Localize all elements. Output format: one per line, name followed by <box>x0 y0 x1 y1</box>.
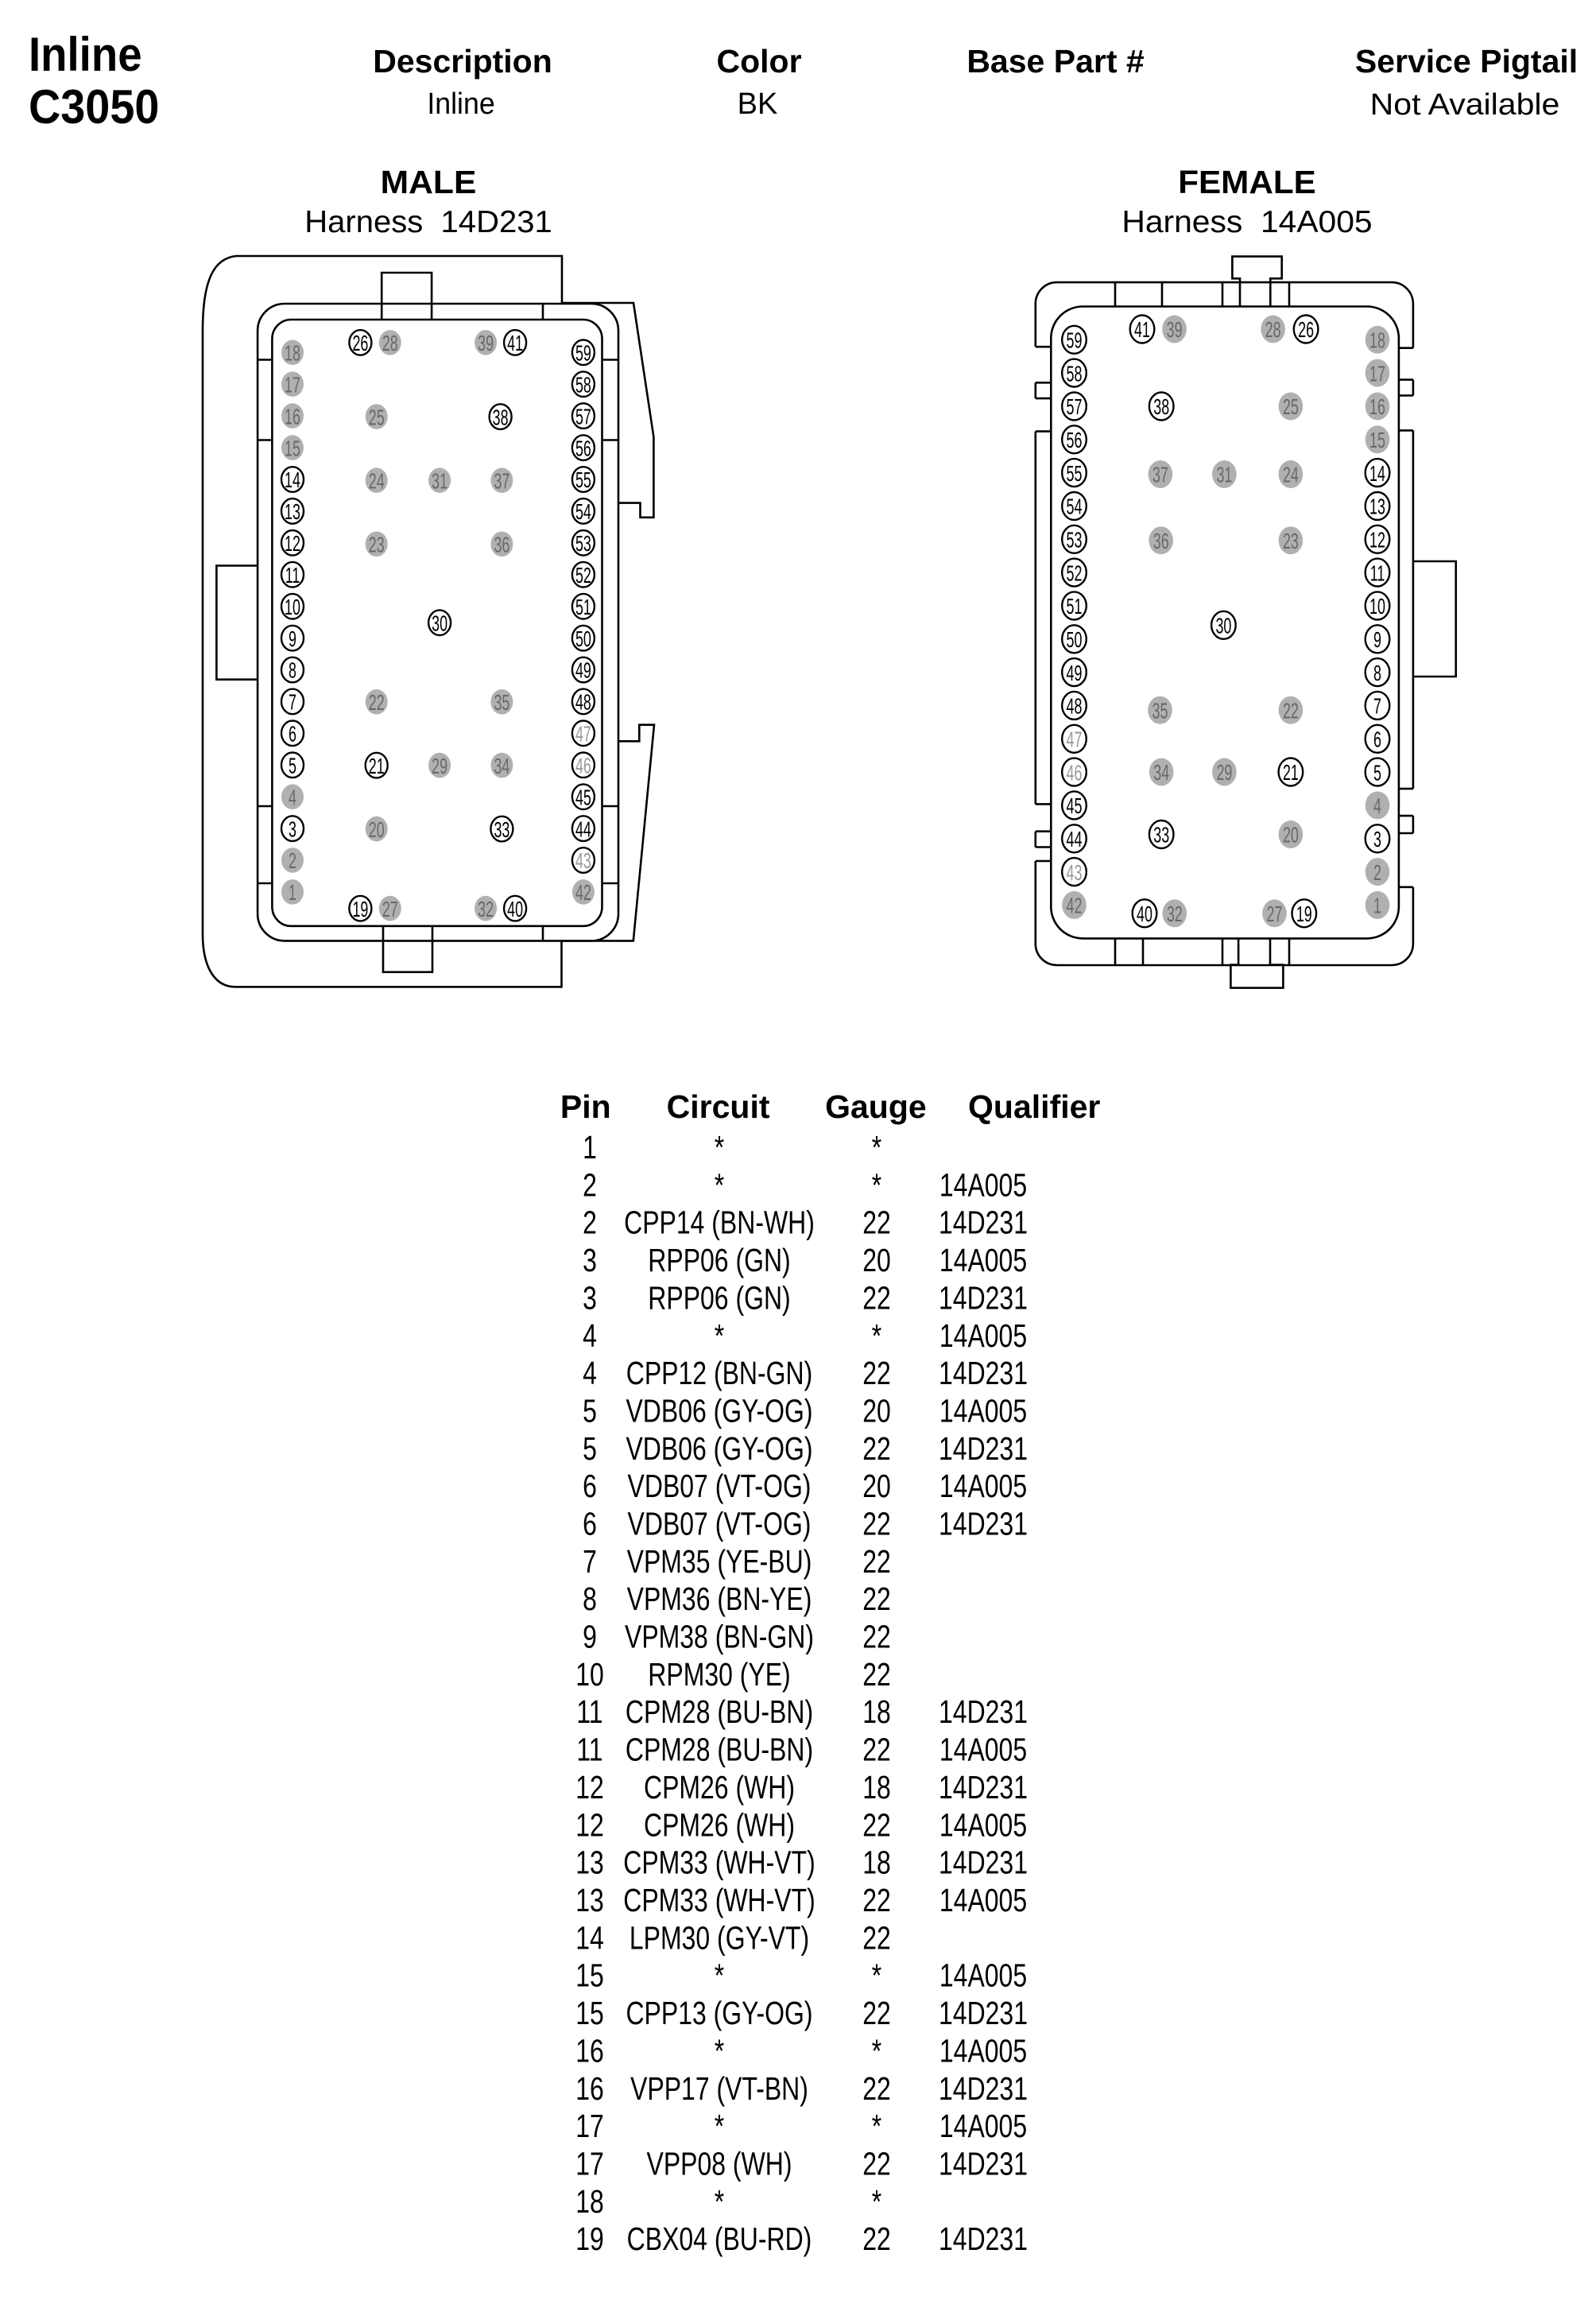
svg-text:14D231: 14D231 <box>939 2070 1028 2107</box>
svg-text:VPM35 (YE-BU): VPM35 (YE-BU) <box>627 1543 812 1580</box>
svg-text:31: 31 <box>1216 463 1232 487</box>
svg-text:CPP14 (BN-WH): CPP14 (BN-WH) <box>624 1204 815 1241</box>
svg-text:16: 16 <box>1369 394 1385 419</box>
svg-text:4: 4 <box>583 1317 597 1354</box>
svg-text:*: * <box>715 2108 724 2144</box>
svg-text:7: 7 <box>1373 694 1381 719</box>
svg-text:37: 37 <box>494 468 509 493</box>
svg-text:14A005: 14A005 <box>939 1393 1027 1429</box>
svg-text:14A005: 14A005 <box>939 2108 1027 2144</box>
svg-text:55: 55 <box>575 467 591 492</box>
svg-text:22: 22 <box>862 1280 891 1317</box>
svg-text:45: 45 <box>1067 793 1083 818</box>
svg-text:13: 13 <box>1369 495 1385 519</box>
svg-text:C3050: C3050 <box>29 81 159 134</box>
svg-text:32: 32 <box>478 897 494 921</box>
svg-text:2: 2 <box>1373 860 1381 885</box>
svg-text:53: 53 <box>575 531 591 556</box>
svg-text:20: 20 <box>862 1468 891 1504</box>
svg-text:50: 50 <box>1067 627 1083 652</box>
svg-text:8: 8 <box>583 1581 597 1617</box>
svg-text:41: 41 <box>507 331 523 355</box>
svg-text:16: 16 <box>575 2033 604 2069</box>
svg-text:19: 19 <box>1296 902 1312 926</box>
svg-text:34: 34 <box>494 754 509 778</box>
svg-text:MALE: MALE <box>381 164 477 200</box>
svg-text:CPM26 (WH): CPM26 (WH) <box>644 1769 795 1806</box>
svg-text:17: 17 <box>575 2108 604 2144</box>
svg-text:8: 8 <box>289 658 296 683</box>
svg-text:18: 18 <box>862 1844 891 1881</box>
svg-text:52: 52 <box>1067 560 1083 585</box>
svg-text:51: 51 <box>575 595 591 619</box>
svg-text:9: 9 <box>289 626 296 651</box>
svg-text:57: 57 <box>1067 394 1083 419</box>
svg-text:5: 5 <box>583 1393 597 1429</box>
svg-text:14A005: 14A005 <box>939 2033 1027 2069</box>
svg-text:33: 33 <box>1153 823 1169 848</box>
svg-text:4: 4 <box>583 1355 597 1391</box>
svg-text:8: 8 <box>1373 661 1381 685</box>
svg-text:10: 10 <box>575 1656 604 1693</box>
svg-text:19: 19 <box>575 2221 604 2257</box>
svg-text:20: 20 <box>862 1393 891 1429</box>
svg-text:4: 4 <box>1373 793 1381 818</box>
svg-text:6: 6 <box>1373 727 1381 751</box>
svg-text:14D231: 14D231 <box>939 1844 1028 1881</box>
svg-text:14D231: 14D231 <box>939 1280 1028 1317</box>
svg-text:26: 26 <box>1298 317 1314 342</box>
svg-text:45: 45 <box>575 785 591 809</box>
svg-text:47: 47 <box>575 721 591 746</box>
svg-text:22: 22 <box>862 1543 891 1580</box>
svg-text:Not Available: Not Available <box>1370 87 1560 121</box>
svg-text:7: 7 <box>583 1543 597 1580</box>
svg-text:VPM36 (BN-YE): VPM36 (BN-YE) <box>627 1581 812 1617</box>
svg-text:CPP12 (BN-GN): CPP12 (BN-GN) <box>626 1355 812 1391</box>
svg-text:29: 29 <box>1216 760 1232 785</box>
svg-text:24: 24 <box>1283 463 1299 487</box>
svg-text:17: 17 <box>1369 361 1385 386</box>
svg-text:48: 48 <box>1067 694 1083 719</box>
svg-text:20: 20 <box>369 817 385 842</box>
svg-text:36: 36 <box>1153 529 1169 553</box>
svg-text:Harness 14A005: Harness 14A005 <box>1121 205 1372 239</box>
svg-text:13: 13 <box>285 499 300 524</box>
svg-text:14: 14 <box>575 1920 604 1957</box>
svg-text:Base Part #: Base Part # <box>967 43 1145 80</box>
svg-text:*: * <box>715 1167 724 1204</box>
svg-text:11: 11 <box>1370 560 1385 585</box>
svg-text:26: 26 <box>352 331 368 355</box>
svg-text:40: 40 <box>1137 902 1152 926</box>
svg-text:CPM33 (WH-VT): CPM33 (WH-VT) <box>623 1882 815 1918</box>
svg-text:2: 2 <box>289 848 296 873</box>
svg-text:16: 16 <box>575 2070 604 2107</box>
svg-text:22: 22 <box>369 690 385 715</box>
svg-text:14A005: 14A005 <box>939 1468 1027 1504</box>
svg-text:14A005: 14A005 <box>939 1957 1027 1994</box>
svg-text:22: 22 <box>862 1732 891 1768</box>
svg-text:14: 14 <box>1369 461 1385 486</box>
svg-text:Inline: Inline <box>29 29 142 82</box>
svg-text:Circuit: Circuit <box>667 1088 770 1125</box>
svg-text:55: 55 <box>1067 461 1083 486</box>
svg-text:14: 14 <box>285 467 300 492</box>
svg-text:31: 31 <box>432 468 447 493</box>
svg-text:40: 40 <box>507 897 523 921</box>
svg-text:3: 3 <box>1373 827 1381 851</box>
svg-text:17: 17 <box>575 2146 604 2182</box>
svg-text:48: 48 <box>575 690 591 715</box>
svg-text:53: 53 <box>1067 527 1083 552</box>
svg-text:12: 12 <box>1369 527 1385 552</box>
svg-text:VPM38 (BN-GN): VPM38 (BN-GN) <box>625 1619 814 1655</box>
svg-text:21: 21 <box>369 754 385 778</box>
svg-text:*: * <box>872 1957 881 1994</box>
svg-text:RPP06 (GN): RPP06 (GN) <box>648 1242 790 1278</box>
svg-text:10: 10 <box>285 595 300 619</box>
svg-text:29: 29 <box>432 754 447 778</box>
svg-text:Description: Description <box>373 43 552 80</box>
svg-text:23: 23 <box>369 532 385 557</box>
svg-text:25: 25 <box>1283 394 1299 419</box>
svg-text:*: * <box>715 2033 724 2069</box>
svg-text:6: 6 <box>583 1468 597 1504</box>
svg-text:22: 22 <box>862 1204 891 1241</box>
svg-text:*: * <box>872 1317 881 1354</box>
svg-text:5: 5 <box>583 1430 597 1467</box>
svg-text:19: 19 <box>352 897 368 921</box>
svg-text:35: 35 <box>1152 698 1168 723</box>
svg-text:6: 6 <box>289 721 296 746</box>
svg-text:18: 18 <box>575 2183 604 2220</box>
svg-text:20: 20 <box>862 1242 891 1278</box>
svg-text:58: 58 <box>575 372 591 397</box>
svg-text:RPP06 (GN): RPP06 (GN) <box>648 1280 790 1317</box>
svg-text:13: 13 <box>575 1844 604 1881</box>
svg-text:VDB06 (GY-OG): VDB06 (GY-OG) <box>626 1393 812 1429</box>
svg-text:14D231: 14D231 <box>939 2146 1028 2182</box>
svg-text:44: 44 <box>1067 827 1083 851</box>
svg-text:CBX04 (BU-RD): CBX04 (BU-RD) <box>627 2221 812 2257</box>
svg-text:22: 22 <box>862 1920 891 1957</box>
svg-text:32: 32 <box>1167 902 1183 926</box>
svg-text:14A005: 14A005 <box>939 1242 1027 1278</box>
svg-text:11: 11 <box>576 1693 602 1730</box>
svg-text:49: 49 <box>1067 661 1083 685</box>
svg-text:42: 42 <box>1067 894 1083 918</box>
svg-text:*: * <box>715 1317 724 1354</box>
svg-text:46: 46 <box>575 753 591 778</box>
svg-text:18: 18 <box>862 1769 891 1806</box>
svg-text:23: 23 <box>1283 529 1299 553</box>
svg-text:VDB07 (VT-OG): VDB07 (VT-OG) <box>628 1506 812 1542</box>
svg-text:14D231: 14D231 <box>939 1769 1028 1806</box>
svg-text:16: 16 <box>285 404 300 429</box>
svg-text:Service Pigtail: Service Pigtail <box>1355 43 1578 80</box>
svg-text:51: 51 <box>1067 594 1083 619</box>
svg-text:CPM26 (WH): CPM26 (WH) <box>644 1807 795 1844</box>
svg-text:10: 10 <box>1369 594 1385 619</box>
svg-text:*: * <box>872 2033 881 2069</box>
svg-text:27: 27 <box>382 897 398 921</box>
svg-text:22: 22 <box>862 2221 891 2257</box>
svg-text:VPP17 (VT-BN): VPP17 (VT-BN) <box>630 2070 808 2107</box>
svg-text:41: 41 <box>1134 317 1150 342</box>
svg-text:59: 59 <box>575 340 591 365</box>
svg-text:5: 5 <box>1373 760 1381 785</box>
svg-text:22: 22 <box>862 1995 891 2031</box>
svg-text:13: 13 <box>575 1882 604 1918</box>
svg-text:43: 43 <box>575 848 591 873</box>
svg-text:42: 42 <box>575 880 591 905</box>
svg-text:1: 1 <box>583 1129 597 1166</box>
svg-text:14D231: 14D231 <box>939 1693 1028 1730</box>
svg-text:9: 9 <box>583 1619 597 1655</box>
svg-text:22: 22 <box>862 1581 891 1617</box>
svg-text:34: 34 <box>1153 760 1169 785</box>
svg-text:28: 28 <box>1265 317 1281 342</box>
svg-text:56: 56 <box>575 436 591 460</box>
svg-text:52: 52 <box>575 563 591 588</box>
svg-text:18: 18 <box>1369 328 1385 352</box>
svg-text:22: 22 <box>862 1355 891 1391</box>
svg-text:CPM33 (WH-VT): CPM33 (WH-VT) <box>623 1844 815 1881</box>
svg-text:Harness 14D231: Harness 14D231 <box>304 205 552 239</box>
svg-text:14D231: 14D231 <box>939 1430 1028 1467</box>
svg-text:22: 22 <box>862 1656 891 1693</box>
svg-text:14A005: 14A005 <box>939 1317 1027 1354</box>
svg-text:17: 17 <box>285 372 300 397</box>
svg-text:25: 25 <box>369 405 385 429</box>
svg-text:7: 7 <box>289 690 296 715</box>
svg-text:18: 18 <box>862 1693 891 1730</box>
svg-text:58: 58 <box>1067 361 1083 386</box>
svg-text:14D231: 14D231 <box>939 2221 1028 2257</box>
svg-text:15: 15 <box>575 1957 604 1994</box>
svg-text:49: 49 <box>575 658 591 683</box>
svg-text:Inline: Inline <box>427 87 494 120</box>
svg-text:39: 39 <box>1167 317 1183 342</box>
svg-text:*: * <box>872 1167 881 1204</box>
svg-text:59: 59 <box>1067 328 1083 352</box>
svg-text:43: 43 <box>1067 860 1083 885</box>
svg-text:15: 15 <box>1369 428 1385 452</box>
svg-text:RPM30 (YE): RPM30 (YE) <box>648 1656 790 1693</box>
svg-text:14A005: 14A005 <box>939 1882 1027 1918</box>
svg-text:6: 6 <box>583 1506 597 1542</box>
svg-text:30: 30 <box>1215 613 1231 638</box>
svg-text:44: 44 <box>575 816 591 841</box>
svg-text:14A005: 14A005 <box>939 1807 1027 1844</box>
svg-text:28: 28 <box>382 331 398 355</box>
svg-text:22: 22 <box>862 1430 891 1467</box>
svg-text:20: 20 <box>1283 823 1299 848</box>
svg-text:54: 54 <box>575 499 591 524</box>
svg-text:3: 3 <box>289 816 296 841</box>
svg-text:57: 57 <box>575 404 591 429</box>
svg-text:11: 11 <box>576 1732 602 1768</box>
svg-text:18: 18 <box>285 340 300 365</box>
svg-text:5: 5 <box>289 753 296 778</box>
svg-text:36: 36 <box>494 532 509 557</box>
svg-text:33: 33 <box>494 817 509 842</box>
svg-text:14A005: 14A005 <box>939 1167 1027 1204</box>
svg-text:37: 37 <box>1152 463 1168 487</box>
svg-text:4: 4 <box>289 785 296 809</box>
svg-text:11: 11 <box>285 563 300 588</box>
svg-text:9: 9 <box>1373 627 1381 652</box>
svg-text:46: 46 <box>1067 760 1083 785</box>
svg-text:BK: BK <box>738 87 778 121</box>
svg-text:12: 12 <box>285 531 300 556</box>
svg-text:22: 22 <box>862 2146 891 2182</box>
svg-text:22: 22 <box>862 1807 891 1844</box>
svg-text:14D231: 14D231 <box>939 1204 1028 1241</box>
svg-text:3: 3 <box>583 1280 597 1317</box>
svg-text:Gauge: Gauge <box>825 1088 927 1125</box>
svg-text:Qualifier: Qualifier <box>968 1088 1100 1125</box>
svg-text:12: 12 <box>575 1769 604 1806</box>
svg-text:*: * <box>872 2108 881 2144</box>
svg-text:3: 3 <box>583 1242 597 1278</box>
svg-text:CPM28 (BU-BN): CPM28 (BU-BN) <box>626 1732 813 1768</box>
svg-text:VPP08 (WH): VPP08 (WH) <box>647 2146 792 2182</box>
svg-text:22: 22 <box>862 2070 891 2107</box>
svg-text:24: 24 <box>369 468 385 493</box>
svg-text:22: 22 <box>1283 698 1299 723</box>
svg-text:2: 2 <box>583 1204 597 1241</box>
svg-text:Pin: Pin <box>560 1088 611 1125</box>
svg-text:FEMALE: FEMALE <box>1178 164 1316 200</box>
svg-text:*: * <box>872 1129 881 1166</box>
svg-text:1: 1 <box>289 880 296 905</box>
svg-text:47: 47 <box>1067 727 1083 751</box>
svg-text:*: * <box>872 2183 881 2220</box>
svg-text:27: 27 <box>1267 902 1283 926</box>
svg-text:14D231: 14D231 <box>939 1506 1028 1542</box>
svg-text:VDB07 (VT-OG): VDB07 (VT-OG) <box>628 1468 812 1504</box>
svg-text:14D231: 14D231 <box>939 1355 1028 1391</box>
svg-text:15: 15 <box>575 1995 604 2031</box>
svg-text:2: 2 <box>583 1167 597 1204</box>
svg-text:15: 15 <box>285 436 300 460</box>
svg-text:Color: Color <box>716 43 801 80</box>
svg-text:22: 22 <box>862 1619 891 1655</box>
svg-text:39: 39 <box>478 331 494 355</box>
svg-text:38: 38 <box>493 405 509 429</box>
svg-text:12: 12 <box>575 1807 604 1844</box>
svg-text:LPM30 (GY-VT): LPM30 (GY-VT) <box>629 1920 809 1957</box>
svg-text:*: * <box>715 2183 724 2220</box>
svg-text:56: 56 <box>1067 428 1083 452</box>
svg-text:21: 21 <box>1283 760 1299 785</box>
svg-text:*: * <box>715 1957 724 1994</box>
svg-text:35: 35 <box>494 690 509 715</box>
svg-text:*: * <box>715 1129 724 1166</box>
svg-text:50: 50 <box>575 626 591 651</box>
svg-text:CPM28 (BU-BN): CPM28 (BU-BN) <box>626 1693 813 1730</box>
svg-text:VDB06 (GY-OG): VDB06 (GY-OG) <box>626 1430 812 1467</box>
svg-text:38: 38 <box>1153 394 1169 419</box>
svg-text:CPP13 (GY-OG): CPP13 (GY-OG) <box>626 1995 812 2031</box>
svg-text:22: 22 <box>862 1882 891 1918</box>
svg-text:14A005: 14A005 <box>939 1732 1027 1768</box>
svg-text:14D231: 14D231 <box>939 1995 1028 2031</box>
svg-text:54: 54 <box>1067 495 1083 519</box>
svg-text:30: 30 <box>432 611 447 635</box>
svg-text:22: 22 <box>862 1506 891 1542</box>
svg-text:1: 1 <box>1373 894 1381 918</box>
